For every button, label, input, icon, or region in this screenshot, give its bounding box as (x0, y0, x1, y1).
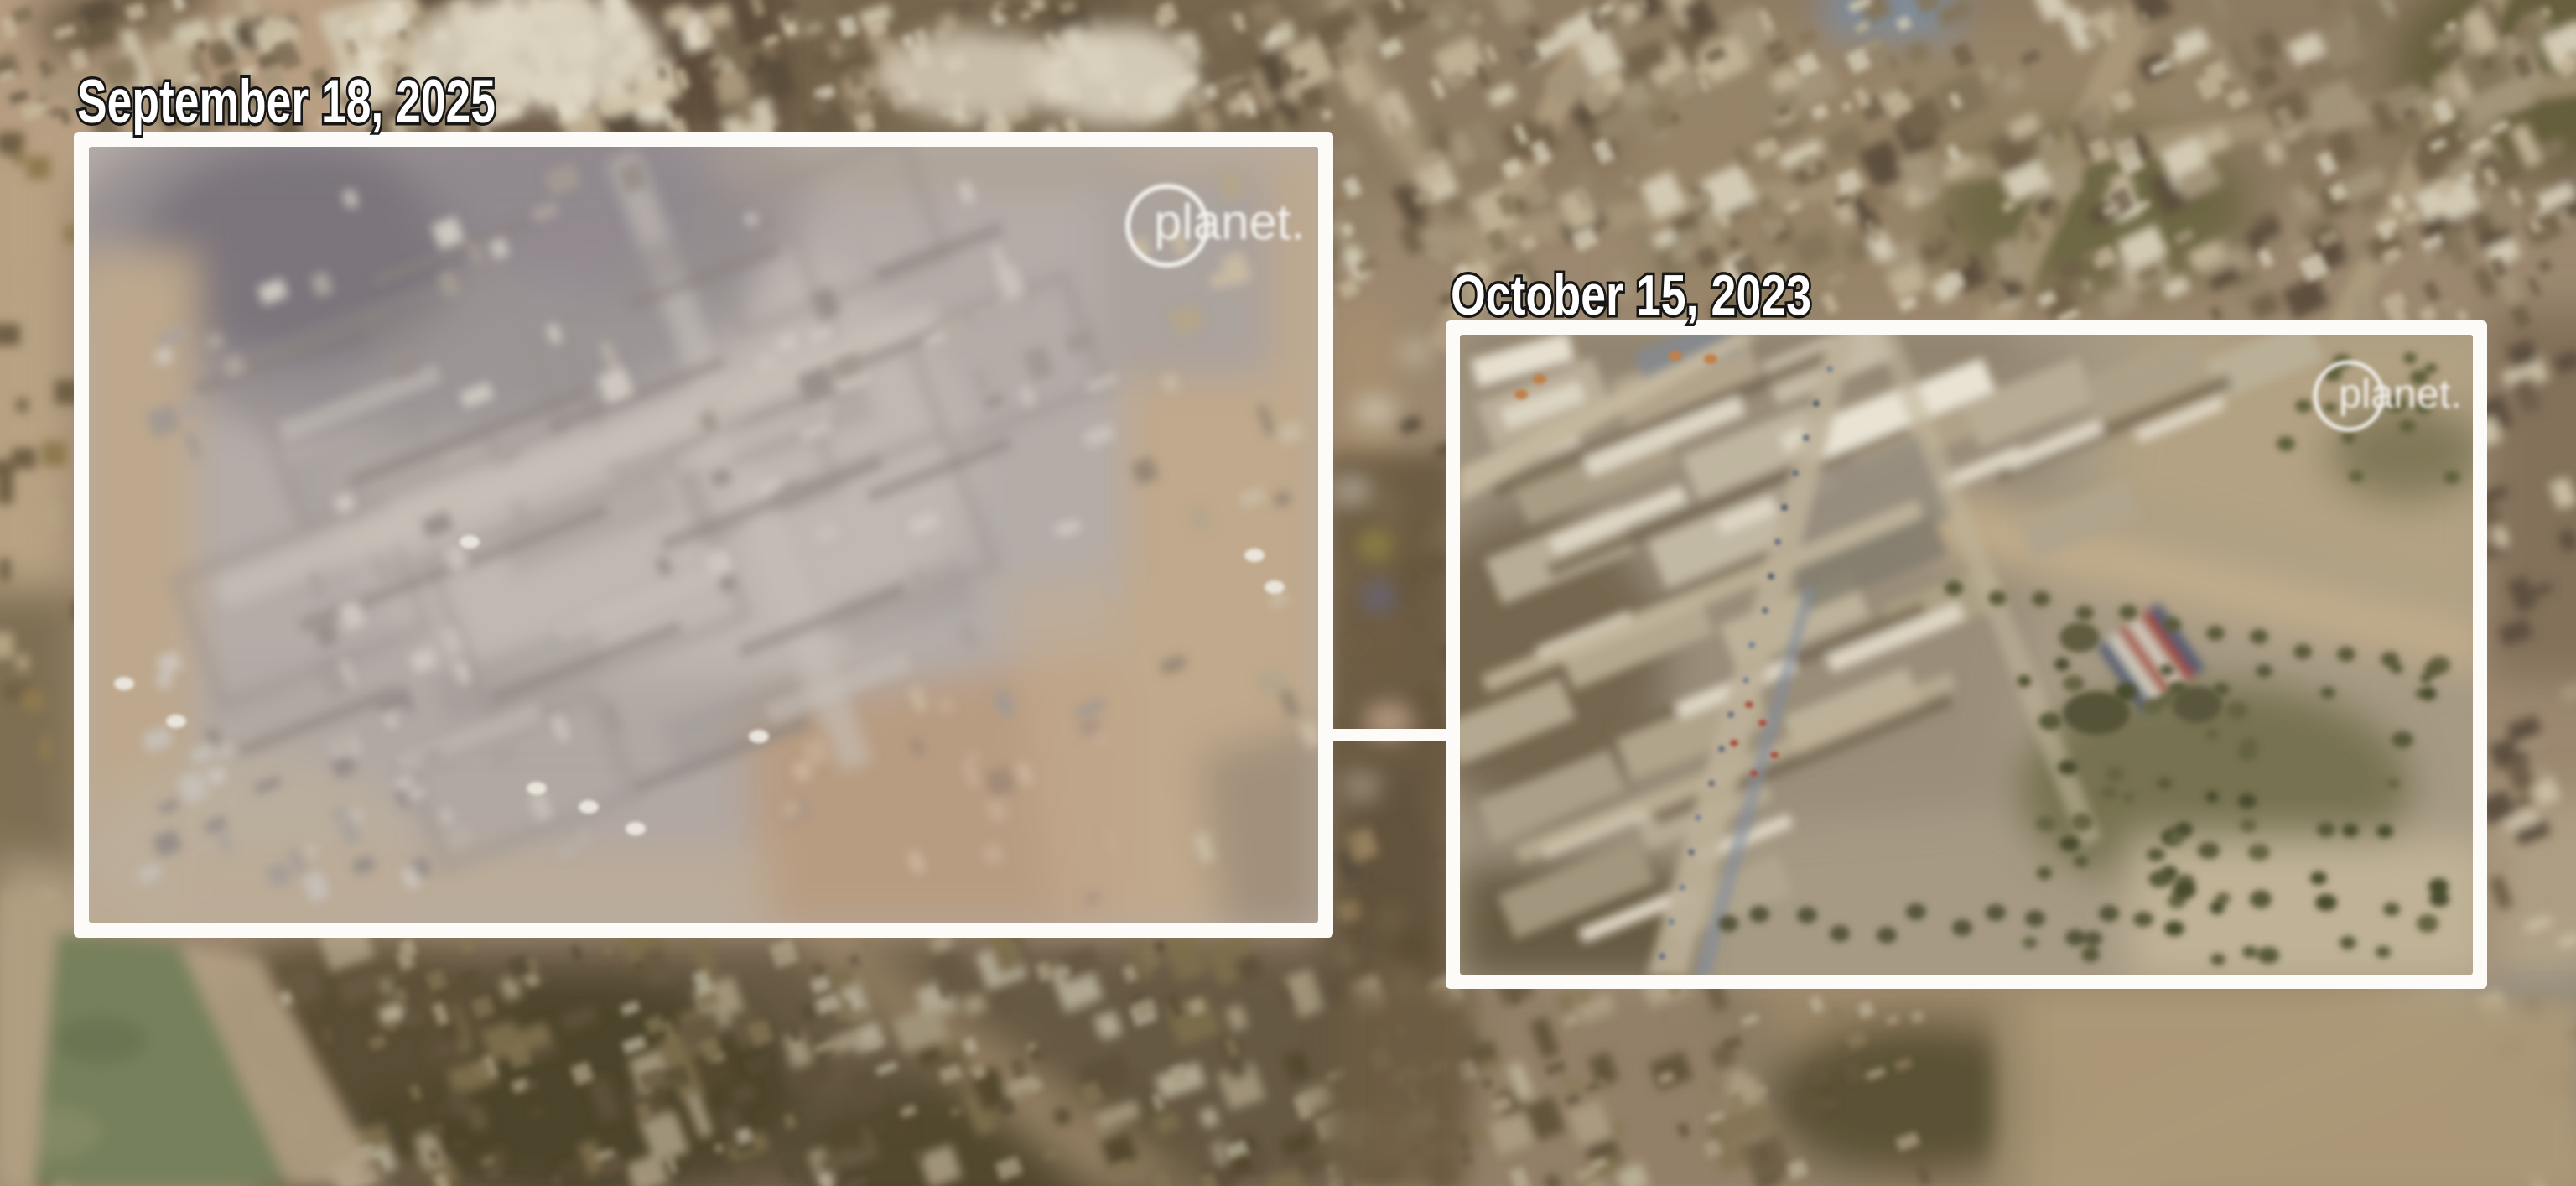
svg-text:planet.: planet. (1154, 194, 1305, 250)
svg-text:September 18, 2025: September 18, 2025 (77, 68, 496, 136)
svg-text:planet.: planet. (2339, 372, 2462, 417)
svg-text:October 15, 2023: October 15, 2023 (1451, 263, 1811, 327)
